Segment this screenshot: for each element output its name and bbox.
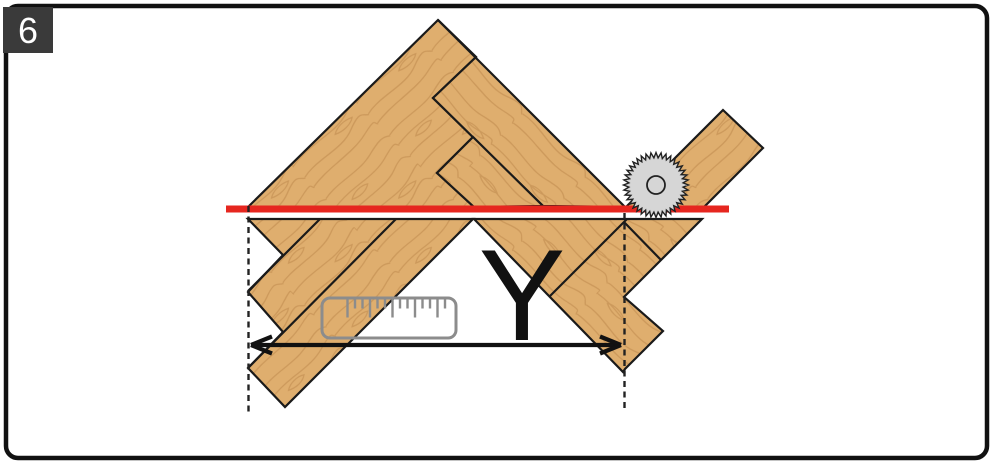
step-badge-number: 6 — [18, 10, 38, 51]
dimension-label-y: Y — [479, 222, 566, 368]
figure-canvas: Y 6 — [0, 0, 994, 467]
upper-panel-left-plank — [248, 20, 476, 207]
saw-arbor-hole — [647, 176, 665, 194]
circular-saw-blade-icon — [624, 153, 689, 218]
flooring-cut-diagram: Y 6 — [0, 0, 994, 467]
step-number-badge: 6 — [3, 7, 53, 53]
lower-left-plank-band — [248, 219, 473, 407]
